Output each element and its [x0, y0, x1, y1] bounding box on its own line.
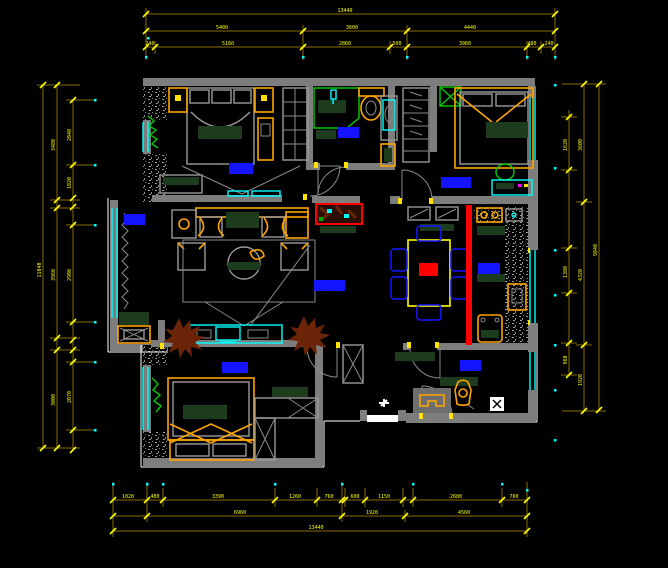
- dimension-text: 240: [544, 41, 553, 47]
- dimension-text: 4320: [578, 269, 584, 281]
- desk-shelf: [272, 387, 308, 397]
- plant-icon: [152, 378, 161, 412]
- dimension-text: 3480: [51, 139, 57, 151]
- wall-right: [528, 160, 536, 250]
- dimension-text: 3600: [346, 25, 358, 31]
- wall-door-jamb: [398, 410, 406, 421]
- room-kids-bedroom: [152, 378, 318, 460]
- room-dining: [391, 207, 467, 320]
- dimension-text: 1920: [366, 510, 378, 516]
- room-label-kitchen: 厨房: [478, 263, 500, 274]
- wall-top: [145, 78, 535, 86]
- low-cabinet: [119, 312, 149, 325]
- potted-plant: [163, 318, 205, 358]
- tall-cabinet: [258, 118, 273, 160]
- dimension-text: 1020: [67, 177, 73, 189]
- window-entry: [530, 352, 535, 390]
- dimension-text: 1150: [378, 494, 390, 500]
- wall-entry-north: [437, 343, 535, 350]
- red-divider: [466, 205, 472, 345]
- dimension-text: 3390: [212, 494, 224, 500]
- floor-drain-symbol: [490, 397, 504, 411]
- room-entry: [343, 345, 504, 422]
- room-label-kids-bedroom: 儿童房: [222, 362, 248, 373]
- dimension-text: 480: [527, 41, 536, 47]
- tv-cable: [205, 302, 244, 326]
- dimension-text: 2070: [67, 391, 73, 403]
- wall-pier-hatch: [143, 86, 167, 120]
- wall-door-jamb: [360, 410, 367, 421]
- dimension-text: 4440: [464, 25, 476, 31]
- bed-double: [455, 88, 533, 168]
- armchair: [178, 243, 205, 270]
- dimension-text: 480: [150, 494, 159, 500]
- wall-bedroom3-east: [315, 345, 323, 466]
- room-label-dining-room: 餐厅: [314, 280, 345, 291]
- dimension-text: 760: [324, 494, 333, 500]
- dimension-text: 4560: [458, 510, 470, 516]
- shoe-cabinet: [413, 388, 451, 413]
- wall-pier-hatch: [143, 432, 167, 462]
- dimension-text: 11040: [37, 262, 43, 277]
- potted-plant: [288, 316, 330, 356]
- desk-item: [524, 184, 528, 187]
- dimension-text: 5160: [222, 41, 234, 47]
- hall-mat: [320, 226, 356, 233]
- window-blind-symbol: [408, 207, 458, 231]
- dimension-text: 3000: [51, 394, 57, 406]
- door-bathroom: [318, 167, 346, 195]
- corridor-closet: [343, 345, 363, 383]
- wardrobe-l: [255, 398, 318, 460]
- nightstand: [169, 88, 187, 112]
- dimension-text: 1020: [122, 494, 134, 500]
- toilet-icon: [359, 88, 384, 120]
- room-label-master-bedroom: 主卧: [229, 163, 253, 174]
- bed-single: [168, 378, 254, 443]
- dimension-text: 600: [350, 494, 359, 500]
- dimension-text: 1620: [563, 139, 569, 151]
- dimension-text: 2900: [67, 269, 73, 281]
- bath-mat: [316, 130, 336, 139]
- wall-bathroom-west: [306, 86, 313, 170]
- dimension-text: 960: [563, 355, 569, 364]
- dimension-text: 2860: [339, 41, 351, 47]
- side-table: [172, 210, 196, 238]
- dimension-text: 3960: [459, 41, 471, 47]
- dimension-text: 1380: [563, 266, 569, 278]
- room-master-bedroom: [148, 88, 308, 196]
- wall-bedroom2-west: [430, 86, 437, 152]
- wardrobe-grid: [283, 88, 308, 160]
- room-label-living-room: 客厅: [124, 214, 145, 225]
- rug-border: [183, 240, 315, 302]
- kitchen-cart: [478, 315, 502, 342]
- dimension-text: 500: [392, 41, 401, 47]
- ceiling-fan-icon: [440, 87, 461, 106]
- dimension-text: 3960: [51, 269, 57, 281]
- dimension-text: 2680: [450, 494, 462, 500]
- dimension-text: 6960: [234, 510, 246, 516]
- north-mark-icon: [379, 399, 389, 407]
- coffee-table: [228, 247, 264, 279]
- nightstand: [255, 88, 273, 112]
- hall-closet: [403, 88, 429, 162]
- dimension-text: 13440: [337, 8, 352, 14]
- dimension-text: 9840: [593, 244, 599, 256]
- room-kitchen: [466, 205, 528, 345]
- room-label-second-bedroom: 次卧: [441, 177, 471, 188]
- desk-item: [518, 184, 522, 187]
- room-label-bathroom: 卫生间: [338, 127, 359, 138]
- bed-double: [187, 88, 254, 164]
- entry-threshold: [367, 399, 398, 422]
- dimension-text: 760: [509, 494, 518, 500]
- floorplan-drawing: 1344054003600444024051602860500396048024…: [0, 0, 668, 568]
- room-label-entry: 玄关: [460, 360, 481, 371]
- dimension-text: 1260: [289, 494, 301, 500]
- entry-rug: [316, 204, 362, 233]
- dimension-text: 5400: [216, 25, 228, 31]
- dimension-text: 13440: [308, 525, 323, 531]
- dimension-text: 2040: [67, 129, 73, 141]
- wall-entry-south: [406, 413, 536, 421]
- door-second-bedroom: [402, 170, 432, 200]
- dimension-text: 1920: [578, 374, 584, 386]
- tv-cable: [244, 302, 283, 326]
- sofa-set: [196, 208, 308, 238]
- dimension-text: 240: [145, 41, 154, 47]
- dimension-text: 3600: [578, 139, 584, 151]
- window-kitchen: [530, 250, 535, 323]
- counter-green: [477, 226, 505, 235]
- dining-table: [408, 240, 450, 306]
- counter-green: [477, 274, 505, 282]
- wall-kitchen-north: [432, 196, 535, 204]
- entry-bench: [395, 352, 435, 361]
- cad-canvas: 1344054003600444024051602860500396048024…: [0, 0, 668, 568]
- wall-hall-south: [312, 196, 360, 203]
- room-balcony: [118, 326, 150, 343]
- door-master-bedroom: [310, 166, 340, 196]
- shower-enclosure: [314, 88, 359, 128]
- curtain-zigzag: [122, 213, 128, 309]
